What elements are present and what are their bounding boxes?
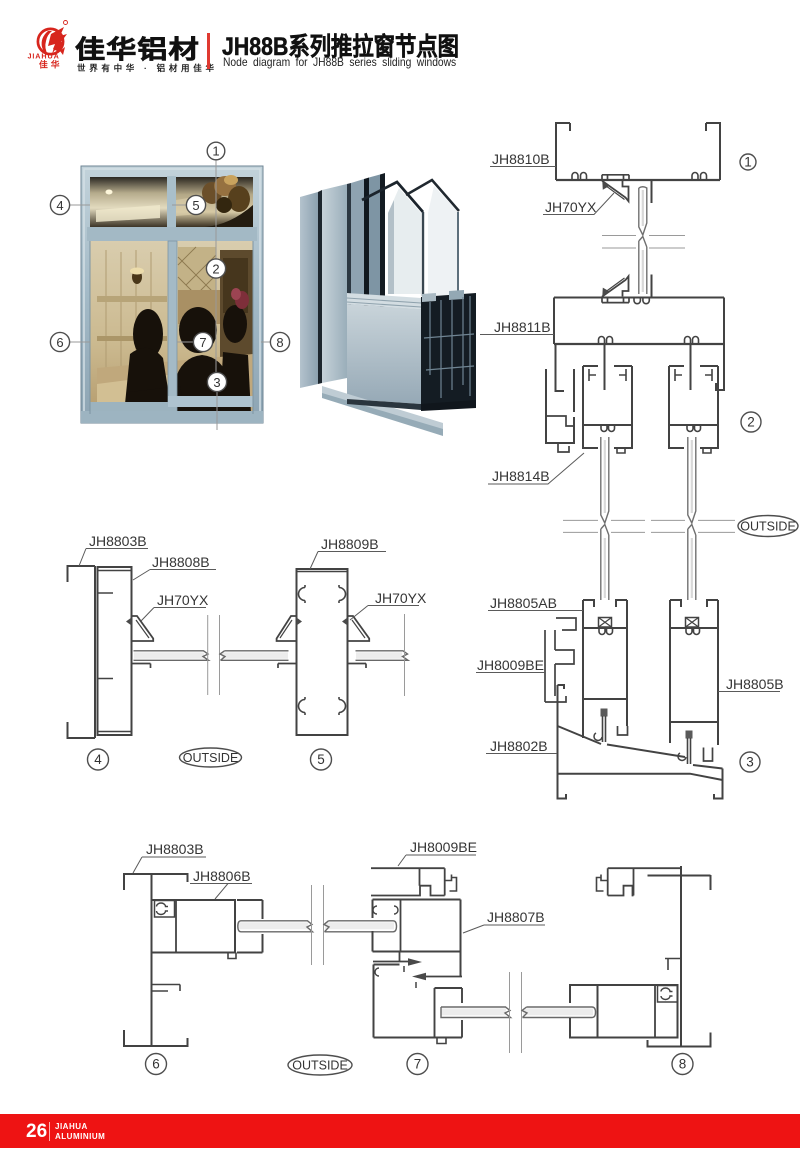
svg-text:OUTSIDE: OUTSIDE xyxy=(183,751,239,765)
svg-text:4: 4 xyxy=(56,198,63,213)
svg-text:JH70YX: JH70YX xyxy=(157,592,209,608)
svg-text:JH8805B: JH8805B xyxy=(726,676,784,692)
svg-text:2: 2 xyxy=(212,261,219,276)
svg-text:1: 1 xyxy=(212,144,219,159)
svg-text:JH8803B: JH8803B xyxy=(89,533,147,549)
svg-text:JH8810B: JH8810B xyxy=(492,151,550,167)
svg-text:JH8009BE: JH8009BE xyxy=(410,839,477,855)
svg-text:7: 7 xyxy=(199,335,206,350)
svg-text:1: 1 xyxy=(744,155,752,170)
svg-text:7: 7 xyxy=(414,1057,422,1072)
svg-text:8: 8 xyxy=(679,1057,687,1072)
svg-text:OUTSIDE: OUTSIDE xyxy=(740,520,796,534)
svg-text:JH8009BE: JH8009BE xyxy=(477,657,544,673)
svg-text:6: 6 xyxy=(152,1057,160,1072)
svg-text:JH8806B: JH8806B xyxy=(193,868,251,884)
svg-text:JH8808B: JH8808B xyxy=(152,554,210,570)
svg-text:3: 3 xyxy=(746,755,754,770)
svg-text:JH70YX: JH70YX xyxy=(545,199,597,215)
svg-text:JH8811B: JH8811B xyxy=(494,319,551,335)
svg-text:JH8805AB: JH8805AB xyxy=(490,595,557,611)
svg-text:JH70YX: JH70YX xyxy=(375,590,427,606)
svg-text:8: 8 xyxy=(276,335,283,350)
svg-text:JH8809B: JH8809B xyxy=(321,536,379,552)
svg-text:JH8802B: JH8802B xyxy=(490,738,548,754)
svg-text:JH8814B: JH8814B xyxy=(492,468,550,484)
svg-text:JH8807B: JH8807B xyxy=(487,909,545,925)
svg-text:4: 4 xyxy=(94,752,102,767)
svg-text:2: 2 xyxy=(747,415,755,430)
svg-text:5: 5 xyxy=(317,752,325,767)
svg-text:3: 3 xyxy=(213,375,220,390)
svg-text:OUTSIDE: OUTSIDE xyxy=(292,1059,348,1073)
svg-text:6: 6 xyxy=(56,335,63,350)
svg-text:JH8803B: JH8803B xyxy=(146,841,204,857)
svg-text:5: 5 xyxy=(192,198,199,213)
